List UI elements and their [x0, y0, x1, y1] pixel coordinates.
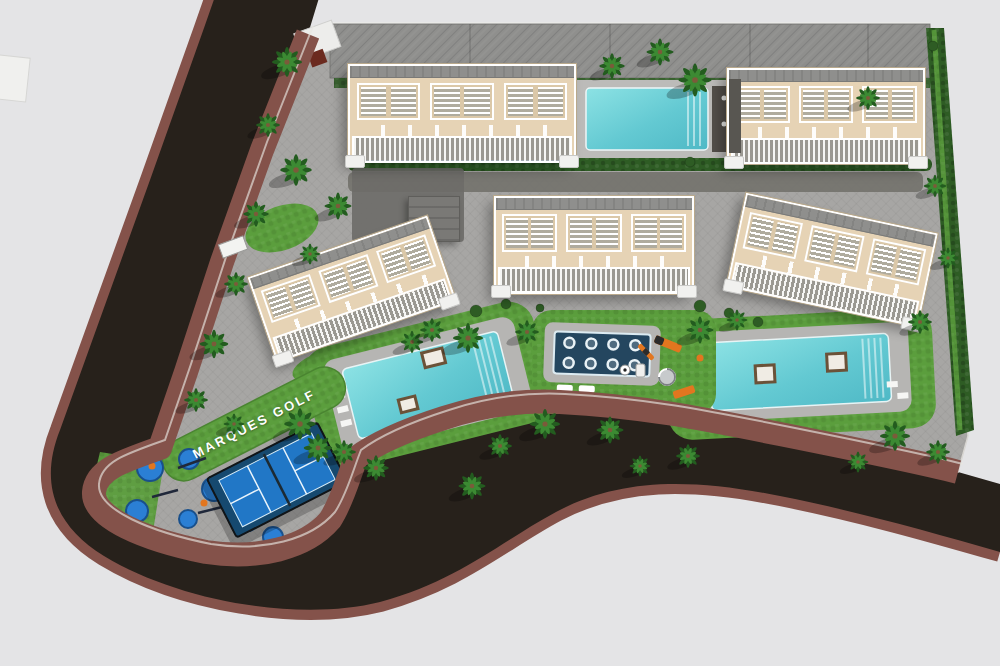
pergola [566, 214, 621, 252]
pergola [357, 83, 420, 121]
balcony-railing [731, 138, 921, 164]
roof-pergolas [350, 78, 574, 120]
north-pool [586, 88, 708, 150]
marques-golf-site-render: MARQUES GOLF [0, 0, 1000, 666]
pergola [430, 83, 493, 121]
apartment-block-northwest [348, 64, 576, 162]
pergola [631, 214, 686, 252]
pergola [799, 86, 854, 123]
building-body [729, 70, 923, 162]
building-roof [729, 70, 923, 82]
roof-pergolas [496, 210, 692, 252]
building-body [350, 66, 574, 160]
pergola [735, 86, 790, 123]
terrace-furniture [366, 125, 559, 136]
pergola [866, 238, 927, 285]
apartment-block-central [494, 196, 694, 294]
pergola [504, 83, 567, 121]
building-roof [496, 198, 692, 210]
stairs [345, 155, 365, 168]
pergola [862, 86, 917, 123]
stairs [908, 156, 928, 169]
building-roof [350, 66, 574, 78]
terrace-furniture [510, 256, 679, 267]
roof-pergolas [729, 82, 923, 123]
balcony-railing [498, 267, 690, 294]
terrace-furniture [743, 127, 910, 138]
stairs [491, 285, 511, 298]
pergola [804, 225, 865, 272]
stairs [677, 285, 697, 298]
building-body [496, 198, 692, 292]
stairs [724, 156, 744, 169]
pergola [742, 212, 803, 259]
pergola [502, 214, 557, 252]
apartment-block-northeast [727, 68, 925, 164]
bench [636, 364, 645, 377]
neighbour-building [0, 54, 30, 102]
balcony-railing [352, 136, 572, 163]
stairs [559, 155, 579, 168]
